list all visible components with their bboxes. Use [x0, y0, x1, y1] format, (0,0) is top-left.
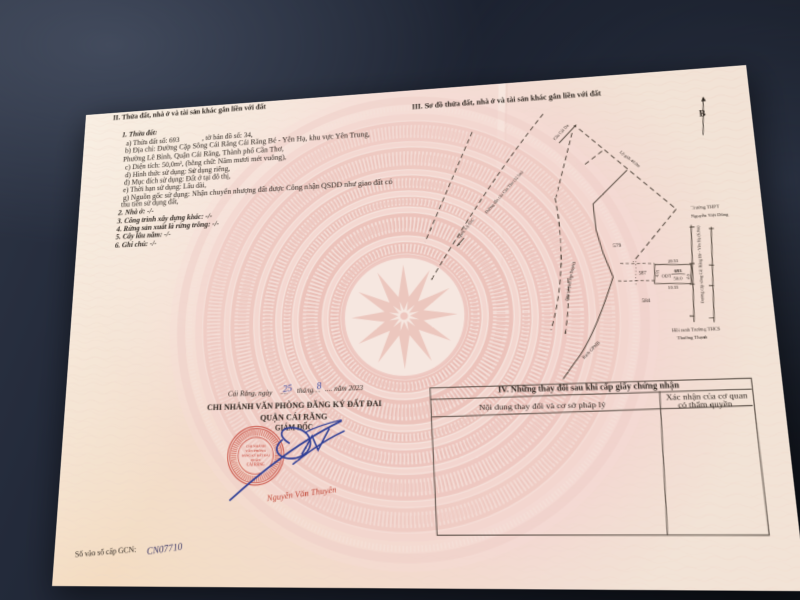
svg-text:.... năm 2023: .... năm 2023 — [325, 385, 363, 393]
svg-text:25: 25 — [282, 382, 292, 394]
svg-text:tháng: tháng — [297, 388, 313, 396]
svg-text:CHI NHÁNH: CHI NHÁNH — [246, 445, 267, 449]
svg-text:50.0: 50.0 — [673, 276, 682, 281]
svg-text:VĂN PHÒNG: VĂN PHÒNG — [245, 449, 266, 453]
svg-text:4.91: 4.91 — [654, 269, 660, 277]
svg-text:Cái Răng, ngày: Cái Răng, ngày — [228, 390, 273, 398]
svg-text:693: 693 — [674, 269, 682, 274]
svg-text:Thường Thạnh: Thường Thạnh — [677, 335, 708, 341]
svg-text:ĐĂNG KÝ ĐẤT ĐAI: ĐĂNG KÝ ĐẤT ĐAI — [242, 454, 270, 458]
svg-text:có thẩm quyền: có thẩm quyền — [678, 400, 734, 410]
svg-text:QUẬN CÁI RĂNG: QUẬN CÁI RĂNG — [260, 412, 328, 423]
svg-text:10.33: 10.33 — [668, 285, 679, 290]
svg-text:579: 579 — [613, 242, 622, 248]
svg-text:584: 584 — [642, 297, 652, 304]
svg-text:20.53: 20.53 — [668, 259, 679, 264]
svg-text:CÁI RĂNG: CÁI RĂNG — [246, 461, 265, 468]
svg-text:587: 587 — [638, 269, 646, 275]
svg-text:B: B — [699, 108, 706, 119]
svg-text:4.0: 4.0 — [685, 274, 691, 280]
svg-text:ODT: ODT — [661, 274, 672, 279]
